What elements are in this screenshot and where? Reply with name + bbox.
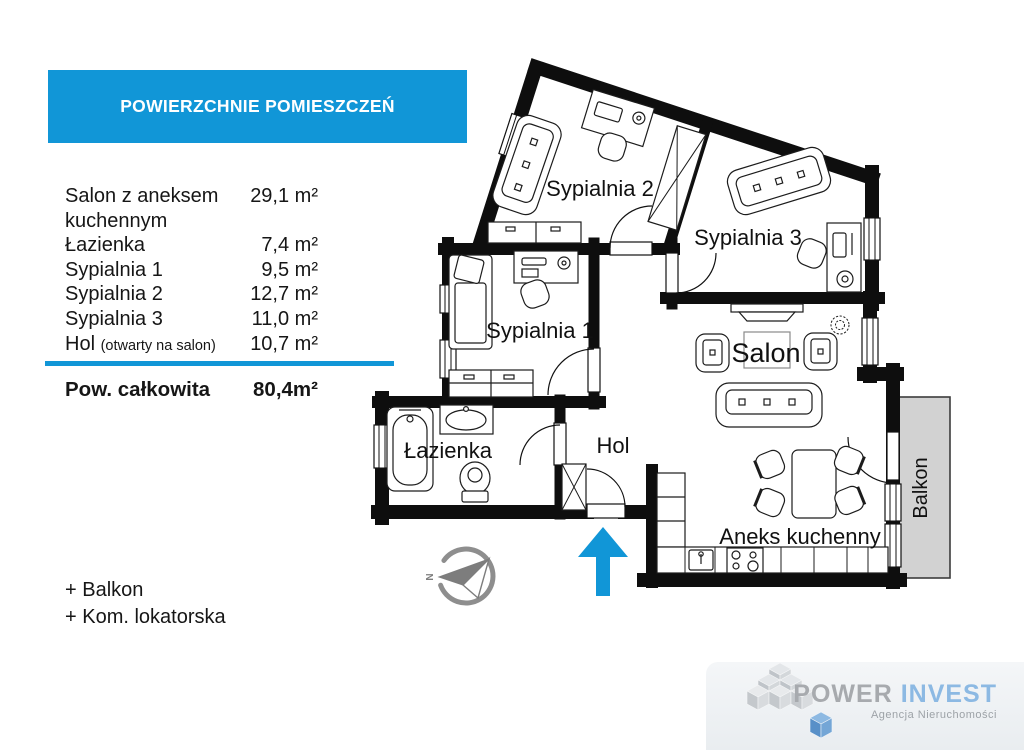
desk-sypialnia1 <box>514 251 578 283</box>
dining-table <box>792 450 836 518</box>
plant-icon <box>831 316 849 334</box>
entrance-arrow <box>578 527 628 596</box>
floor-plan: Sypialnia 2 Sypialnia 3 Sypialnia 1 Salo… <box>0 0 1024 750</box>
sofa-salon <box>716 383 822 427</box>
stove-icon <box>727 548 763 573</box>
label-sypialnia3: Sypialnia 3 <box>694 225 802 250</box>
desk-sypialnia3 <box>827 223 861 292</box>
door-sypialnia3 <box>666 253 716 293</box>
compass: N <box>425 549 493 603</box>
door-lazienka <box>520 423 566 465</box>
label-salon: Salon <box>731 338 800 368</box>
toilet-icon <box>460 462 490 502</box>
window-icon <box>885 484 901 521</box>
window-icon <box>862 318 878 365</box>
label-sypialnia1: Sypialnia 1 <box>486 318 594 343</box>
label-aneks: Aneks kuchenny <box>719 524 880 549</box>
logo: POWER INVEST Agencja Nieruchomości <box>706 662 1024 750</box>
dining-chair <box>832 444 865 477</box>
dresser-sypialnia2 <box>488 222 581 243</box>
logo-text: POWER INVEST Agencja Nieruchomości <box>793 682 997 721</box>
door-sypialnia1 <box>548 348 600 395</box>
kitchen-sink-icon <box>689 550 713 570</box>
logo-tagline: Agencja Nieruchomości <box>793 709 997 721</box>
window-icon <box>864 218 880 260</box>
label-lazienka: Łazienka <box>404 438 493 463</box>
bed-sypialnia3 <box>724 144 833 217</box>
door-sypialnia2 <box>610 206 652 255</box>
dining-chair <box>832 484 865 517</box>
dresser-sypialnia1 <box>449 370 533 397</box>
label-hol: Hol <box>596 433 629 458</box>
armchair-left <box>696 334 729 372</box>
logo-brand-power: POWER <box>793 680 892 708</box>
door-entrance <box>587 469 625 518</box>
logo-brand-invest: INVEST <box>901 680 997 708</box>
armchair-right <box>804 333 837 370</box>
tv-stand <box>731 304 803 321</box>
furniture <box>387 90 888 573</box>
label-sypialnia2: Sypialnia 2 <box>546 176 654 201</box>
dining-chair <box>753 448 786 481</box>
closet-hol <box>562 464 586 510</box>
dining-chair <box>753 486 786 519</box>
sink-icon <box>440 405 493 434</box>
label-balkon: Balkon <box>910 457 932 518</box>
compass-n-label: N <box>425 573 436 580</box>
page: POWIERZCHNIE POMIESZCZEŃ Salon z aneksem… <box>0 0 1024 750</box>
wardrobe-sypialnia2 <box>648 126 706 230</box>
